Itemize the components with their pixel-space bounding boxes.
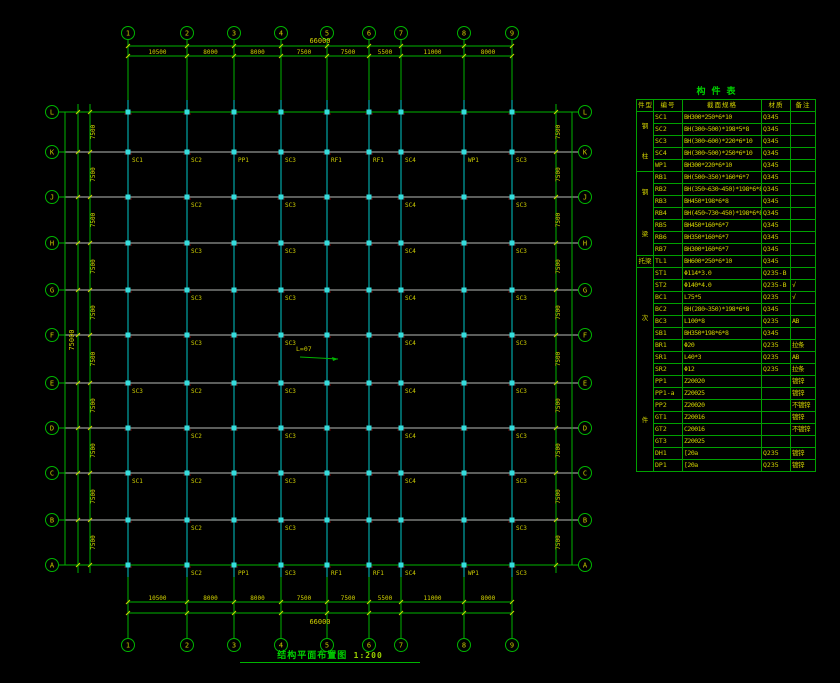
grid-bubble-top-label: 4 [279,30,283,38]
grid-bubble-right-label: H [583,240,587,248]
table-cell: 拉条 [791,340,816,352]
member-label: SC3 [285,295,296,302]
column-marker [325,471,330,476]
table-header-cell: 截面规格 [683,100,762,112]
column-marker [462,150,467,155]
table-cell: ST1 [654,268,683,280]
column-marker [232,150,237,155]
table-row: GT3Z20025 [637,436,816,448]
table-cell: GT1 [654,412,683,424]
table-row: PP2Z20020不镀锌 [637,400,816,412]
table-row: RB5BH450*160*6*7Q345 [637,220,816,232]
column-marker [399,195,404,200]
column-marker [185,241,190,246]
grid-bubble-right-label: L [583,109,587,117]
column-marker [510,195,515,200]
table-cell: BH(500~350)*160*6*7 [683,172,762,184]
table-cell: Q235 [762,460,791,472]
column-marker [279,471,284,476]
table-cell: BH350*198*6*8 [683,328,762,340]
column-marker [462,426,467,431]
table-cell: Q235 [762,292,791,304]
table-cell: SR2 [654,364,683,376]
table-cell [762,436,791,448]
table-row: RB6BH350*160*6*7Q345 [637,232,816,244]
dim-text-left: 7500 [90,212,97,227]
category-char: 次 [642,313,649,324]
member-label: SC3 [285,525,296,532]
table-cell: BC1 [654,292,683,304]
table-cell: Q235 [762,316,791,328]
grid-bubble-left-label: E [50,380,54,388]
table-cell: Q235 [762,340,791,352]
table-cell: Q345 [762,256,791,268]
dim-text-right: 7500 [555,167,562,182]
category-label: 钢梁 [638,172,652,255]
table-cell: WP1 [654,160,683,172]
member-label: SC3 [191,340,202,347]
dim-text-bottom: 8000 [481,595,496,602]
table-cell: BC2 [654,304,683,316]
table-row: GT2C20016不镀锌 [637,424,816,436]
grid-bubble-top-label: 6 [367,30,371,38]
member-label: SC2 [191,202,202,209]
column-marker [399,426,404,431]
column-marker [279,381,284,386]
dim-text-right: 7500 [555,259,562,274]
table-cell: L40*3 [683,352,762,364]
column-marker [279,241,284,246]
table-cell [791,256,816,268]
table-cell: 镀锌 [791,412,816,424]
category-char: 钢 [642,187,649,198]
cad-application-canvas[interactable]: 123456789123456789LKJHGFEDCBALKJHGFEDCBA… [0,0,840,683]
grid-bubble-bottom-label: 2 [185,642,189,650]
table-row: SR2Φ12Q235拉条 [637,364,816,376]
table-header-cell: 材质 [762,100,791,112]
table-cell [791,208,816,220]
column-marker [510,381,515,386]
drawing-caption: 结构平面布置图 1:200 [240,648,420,663]
dim-text-top: 11000 [423,49,441,56]
column-marker [232,241,237,246]
table-cell: Q235 [762,364,791,376]
column-marker [185,150,190,155]
dim-text-left: 7500 [90,305,97,320]
table-cell: DH1 [654,448,683,460]
table-cell: Q345 [762,184,791,196]
member-label: PP1 [238,570,249,577]
table-cell: 不镀锌 [791,400,816,412]
dim-text-top: 8000 [203,49,218,56]
dim-text-left: 7500 [90,535,97,550]
column-marker [462,333,467,338]
grid-bubble-left-label: F [50,332,54,340]
column-marker [232,110,237,115]
grid-bubble-left-label: C [50,470,54,478]
member-label: SC4 [405,388,416,395]
column-marker [279,195,284,200]
member-label: SC3 [516,295,527,302]
table-cell: RB5 [654,220,683,232]
grid-bubble-left-label: B [50,517,54,525]
dim-text-right: 7500 [555,489,562,504]
column-marker [367,426,372,431]
grid-bubble-top-label: 3 [232,30,236,38]
table-cell: L75*5 [683,292,762,304]
member-label: SC3 [285,157,296,164]
dim-text-bottom: 7500 [297,595,312,602]
member-label: SC3 [516,248,527,255]
member-label: SC3 [285,478,296,485]
table-cell: Φ114*3.0 [683,268,762,280]
member-label: RF1 [373,157,384,164]
category-label: 钢柱 [638,112,652,171]
table-cell [791,124,816,136]
table-cell: BH(450~730~450)*198*6*8 [683,208,762,220]
table-cell: BH(350~630~450)*198*6*8 [683,184,762,196]
dim-text-right: 7500 [555,443,562,458]
table-header-cell: 件型 [637,100,654,112]
grid-bubble-top-label: 7 [399,30,403,38]
column-marker [510,518,515,523]
column-marker [325,333,330,338]
grid-bubble-left-label: A [50,562,55,570]
column-marker [126,195,131,200]
column-marker [367,241,372,246]
table-cell: √ [791,292,816,304]
grid-bubble-top-label: 9 [510,30,514,38]
dim-text-bottom: 5500 [378,595,393,602]
grid-bubble-left-label: D [50,425,54,433]
table-row: RB2BH(350~630~450)*198*6*8Q345 [637,184,816,196]
table-cell: Q345 [762,124,791,136]
table-cell: Φ140*4.0 [683,280,762,292]
column-marker [399,110,404,115]
table-cell: Q345 [762,244,791,256]
dim-text-left: 7500 [90,398,97,413]
column-marker [232,426,237,431]
dim-text-left: 7500 [90,489,97,504]
table-row: SC3BH(300~600)*220*6*10Q345 [637,136,816,148]
column-marker [279,110,284,115]
member-label: SC2 [191,433,202,440]
table-cell: [20a [683,448,762,460]
grid-bubble-bottom-label: 9 [510,642,514,650]
table-cell: BH350*160*6*7 [683,232,762,244]
member-label: SC3 [516,340,527,347]
category-char: 梁 [642,229,649,240]
member-label: SC3 [285,388,296,395]
column-marker [279,288,284,293]
table-row: 钢柱SC1BH300*250*6*10Q345 [637,112,816,124]
member-label: SC4 [405,248,416,255]
dim-text-top: 7500 [297,49,312,56]
table-row: RB4BH(450~730~450)*198*6*8Q345 [637,208,816,220]
member-label: SC4 [405,340,416,347]
table-cell: 镀锌 [791,376,816,388]
table-cell [762,424,791,436]
table-cell: PP1-a [654,388,683,400]
table-cell [791,268,816,280]
grid-bubble-bottom-label: 1 [126,642,130,650]
table-cell: Q235-B [762,280,791,292]
category-char: 柱 [642,151,649,162]
column-marker [325,150,330,155]
member-label: SC4 [405,157,416,164]
dim-text-right: 7500 [555,124,562,139]
drawing-scale: 1:200 [354,651,383,660]
column-marker [510,288,515,293]
table-cell: L100*8 [683,316,762,328]
table-cell [762,412,791,424]
member-label: SC3 [516,157,527,164]
table-cell: Z20016 [683,412,762,424]
table-cell: Q345 [762,112,791,124]
grid-bubble-right-label: C [583,470,587,478]
table-row: ST2Φ140*4.0Q235-B√ [637,280,816,292]
grid-bubble-right-label: F [583,332,587,340]
table-cell: TL1 [654,256,683,268]
column-marker [279,563,284,568]
column-marker [126,288,131,293]
member-label: SC3 [285,570,296,577]
table-cell: RB2 [654,184,683,196]
column-marker [399,381,404,386]
table-cell: BH300*250*6*10 [683,112,762,124]
table-cell: Q345 [762,208,791,220]
member-label: PP1 [238,157,249,164]
grid-bubble-left-label: K [50,149,55,157]
table-cell: SC1 [654,112,683,124]
column-marker [399,150,404,155]
column-marker [232,518,237,523]
column-marker [325,195,330,200]
dim-text-bottom-total: 66000 [309,618,330,626]
column-marker [232,381,237,386]
table-cell: RB1 [654,172,683,184]
component-table: 构件表 件型编号截面规格材质备注钢柱SC1BH300*250*6*10Q345S… [636,84,802,472]
table-cell: BH(300~500)*198*5*8 [683,124,762,136]
table-row: DH1[20aQ235镀锌 [637,448,816,460]
column-marker [399,563,404,568]
column-marker [185,288,190,293]
table-cell: BH450*198*6*8 [683,196,762,208]
table-cell: Q345 [762,136,791,148]
member-label: WP1 [468,570,479,577]
dim-text-bottom: 11000 [423,595,441,602]
table-cell: BH(280~350)*198*6*8 [683,304,762,316]
column-marker [399,288,404,293]
member-label: SC4 [405,570,416,577]
drawing-title: 结构平面布置图 [277,651,347,661]
table-cell: Q345 [762,160,791,172]
column-marker [185,195,190,200]
table-cell: [20a [683,460,762,472]
table-cell: SC4 [654,148,683,160]
column-marker [462,241,467,246]
table-cell [791,328,816,340]
table-cell: DP1 [654,460,683,472]
member-label: SC3 [516,525,527,532]
member-label: SC3 [191,295,202,302]
table-row: 次件ST1Φ114*3.0Q235-B [637,268,816,280]
table-cell [791,436,816,448]
table-cell: Q235 [762,352,791,364]
dim-text-top: 8000 [481,49,496,56]
table-cell: RB7 [654,244,683,256]
table-cell: BH300*220*6*10 [683,160,762,172]
table-category-cell: 次件 [637,268,654,472]
member-label: SC3 [516,388,527,395]
column-marker [126,471,131,476]
member-label: RF1 [331,570,342,577]
column-marker [325,518,330,523]
column-marker [325,241,330,246]
table-cell: RB4 [654,208,683,220]
table-cell: Φ12 [683,364,762,376]
member-label: SC3 [285,433,296,440]
column-marker [510,471,515,476]
table-cell: RB3 [654,196,683,208]
column-marker [462,381,467,386]
table-cell: SB1 [654,328,683,340]
grid-bubble-right-label: G [583,287,587,295]
dim-text-left: 7500 [90,259,97,274]
dim-text-top: 7500 [341,49,356,56]
member-label: SC3 [285,202,296,209]
table-cell: SC3 [654,136,683,148]
member-label: SC1 [132,478,143,485]
grid-bubble-right-label: B [583,517,587,525]
dim-text-top: 8000 [250,49,265,56]
table-row: DP1[20aQ235镀锌 [637,460,816,472]
table-cell: C20016 [683,424,762,436]
table-header-cell: 备注 [791,100,816,112]
column-marker [325,110,330,115]
column-marker [462,563,467,568]
dim-text-left-total: 75000 [68,329,76,350]
table-cell [791,304,816,316]
table-cell: Q345 [762,196,791,208]
column-marker [325,426,330,431]
column-marker [399,333,404,338]
member-label: WP1 [468,157,479,164]
column-marker [367,381,372,386]
table-cell [791,160,816,172]
dim-text-right: 7500 [555,398,562,413]
member-label: SC2 [191,478,202,485]
table-cell [791,112,816,124]
grid-bubble-right-label: A [583,562,588,570]
column-marker [510,563,515,568]
dim-text-left: 7500 [90,443,97,458]
table-row: WP1BH300*220*6*10Q345 [637,160,816,172]
column-marker [185,333,190,338]
column-marker [126,563,131,568]
table-cell: Q345 [762,172,791,184]
table-cell: BC3 [654,316,683,328]
column-marker [510,110,515,115]
grid-bubble-right-label: K [583,149,588,157]
column-marker [185,110,190,115]
grid-bubble-top-label: 1 [126,30,130,38]
column-marker [126,381,131,386]
column-marker [185,426,190,431]
table-cell: Q345 [762,232,791,244]
column-marker [185,518,190,523]
column-marker [325,563,330,568]
table-cell: PP1 [654,376,683,388]
table-row: SC2BH(300~500)*198*5*8Q345 [637,124,816,136]
dim-text-right: 7500 [555,305,562,320]
table-cell [791,196,816,208]
column-marker [325,288,330,293]
table-cell: 镀锌 [791,460,816,472]
table-cell: Q345 [762,304,791,316]
column-marker [510,241,515,246]
column-marker [399,471,404,476]
dim-text-right: 7500 [555,351,562,366]
member-label: SC2 [191,525,202,532]
table-row: 钢梁RB1BH(500~350)*160*6*7Q345 [637,172,816,184]
column-marker [367,150,372,155]
column-marker [232,471,237,476]
table-cell: GT2 [654,424,683,436]
grid-bubble-bottom-label: 3 [232,642,236,650]
column-marker [399,241,404,246]
column-marker [185,471,190,476]
table-cell: Z20025 [683,436,762,448]
table-row: RB3BH450*198*6*8Q345 [637,196,816,208]
member-label: SC3 [516,433,527,440]
table-cell: PP2 [654,400,683,412]
component-table-title: 构件表 [636,84,802,97]
dim-text-bottom: 7500 [341,595,356,602]
column-marker [367,333,372,338]
table-cell: Z20025 [683,388,762,400]
dim-text-bottom: 8000 [203,595,218,602]
table-cell [791,232,816,244]
category-char: 件 [642,415,649,426]
table-cell: BH600*250*6*10 [683,256,762,268]
table-header-row: 件型编号截面规格材质备注 [637,100,816,112]
table-cell: BH(300~500)*250*6*10 [683,148,762,160]
table-cell: Q345 [762,148,791,160]
member-label: SC4 [405,433,416,440]
table-cell [791,220,816,232]
dim-text-top-total: 66000 [309,37,330,45]
table-cell: 拉条 [791,364,816,376]
dim-text-right: 7500 [555,535,562,550]
column-marker [126,426,131,431]
table-cell: RB6 [654,232,683,244]
dim-text-bottom: 10500 [148,595,166,602]
table-row: BC3L100*8Q235AB [637,316,816,328]
table-cell: AB [791,316,816,328]
table-cell: BR1 [654,340,683,352]
table-cell [762,400,791,412]
table-cell [791,172,816,184]
member-label: SC3 [516,202,527,209]
table-cell: √ [791,280,816,292]
column-marker [232,563,237,568]
column-marker [462,110,467,115]
member-label: SC3 [132,388,143,395]
member-label: SC4 [405,295,416,302]
category-char: 钢 [642,121,649,132]
column-marker [126,150,131,155]
